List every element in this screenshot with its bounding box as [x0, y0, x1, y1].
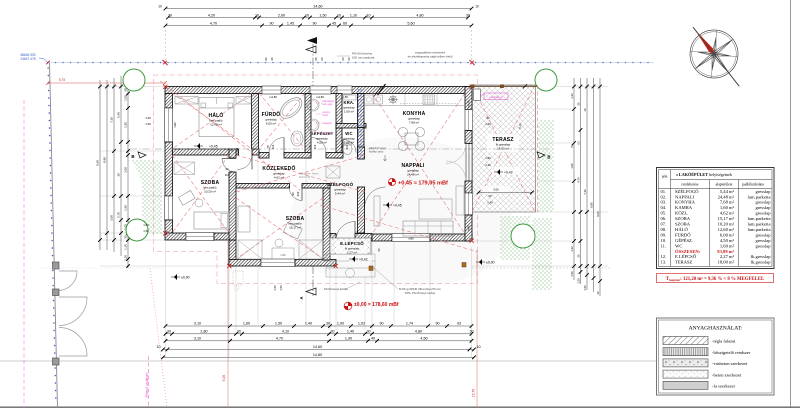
- svg-text:gresslap: gresslap: [755, 243, 771, 248]
- svg-text:10: 10: [596, 291, 600, 295]
- svg-text:01.: 01.: [661, 189, 667, 194]
- svg-text:2,27 m²: 2,27 m²: [347, 250, 357, 254]
- svg-text:8,80: 8,80: [589, 202, 593, 208]
- svg-text:10: 10: [337, 13, 341, 17]
- svg-text:3,00: 3,00: [124, 167, 128, 173]
- svg-text:10: 10: [366, 13, 370, 17]
- svg-text:93: 93: [457, 322, 461, 326]
- svg-text:13.: 13.: [661, 260, 667, 265]
- svg-text:4,50 m²: 4,50 m²: [317, 140, 327, 144]
- svg-text:1,50: 1,50: [319, 13, 326, 17]
- svg-text:4,10: 4,10: [282, 330, 289, 334]
- svg-text:1,50: 1,50: [145, 116, 151, 120]
- svg-text:B: B: [547, 155, 550, 160]
- svg-text:30: 30: [117, 173, 121, 177]
- svg-text:63: 63: [576, 141, 580, 145]
- svg-text:WC: WC: [345, 131, 352, 136]
- svg-text:75: 75: [340, 145, 344, 148]
- svg-text:14,80: 14,80: [313, 353, 322, 357]
- svg-text:03.: 03.: [661, 200, 667, 205]
- svg-text:10: 10: [158, 4, 162, 8]
- svg-text:E.LÉPCSŐ: E.LÉPCSŐ: [340, 241, 364, 246]
- svg-text:10,20 m²: 10,20 m²: [204, 189, 216, 193]
- svg-text:ÖSSZESEN:: ÖSSZESEN:: [675, 249, 701, 254]
- svg-text:rendeltetése: rendeltetése: [681, 183, 699, 187]
- svg-text:210: 210: [296, 191, 300, 196]
- svg-text:-fa szerkezet: -fa szerkezet: [712, 384, 736, 389]
- svg-text:m3,00: m3,00: [466, 100, 470, 108]
- svg-text:1,50: 1,50: [143, 223, 149, 227]
- svg-text:melegvíz: melegvíz: [323, 123, 333, 125]
- svg-text:07.: 07.: [661, 222, 667, 227]
- svg-text:+0,42: +0,42: [504, 171, 513, 175]
- svg-text:90: 90: [264, 57, 268, 61]
- svg-text:10: 10: [476, 345, 480, 349]
- svg-text:10: 10: [475, 4, 479, 8]
- svg-text:-hőszigetelő rendszer: -hőszigetelő rendszer: [712, 350, 751, 355]
- svg-text:5,44 m²: 5,44 m²: [335, 191, 345, 195]
- svg-text:vízell.: vízell.: [323, 115, 329, 117]
- svg-text:KÖZL.: KÖZL.: [675, 211, 688, 216]
- svg-text:1,60: 1,60: [243, 322, 250, 326]
- svg-text:1,50: 1,50: [124, 205, 128, 211]
- svg-text:10: 10: [156, 345, 160, 349]
- svg-text:lam.parketta: lam.parketta: [748, 194, 771, 199]
- svg-text:-tégla falazat: -tégla falazat: [712, 339, 736, 344]
- svg-text:3,10: 3,10: [194, 322, 201, 326]
- svg-text:210: 210: [271, 144, 275, 149]
- svg-text:3,10: 3,10: [194, 337, 201, 341]
- svg-text:60: 60: [341, 57, 345, 61]
- svg-text:30: 30: [366, 330, 370, 334]
- svg-text:m90: m90: [466, 225, 470, 231]
- svg-text:1,60 m²: 1,60 m²: [344, 140, 354, 144]
- svg-text:06.: 06.: [661, 216, 667, 221]
- svg-text:7,30: 7,30: [110, 117, 114, 123]
- svg-text:30: 30: [167, 330, 171, 334]
- svg-text:40: 40: [270, 57, 274, 61]
- svg-text:30: 30: [466, 13, 470, 17]
- svg-text:04.: 04.: [661, 205, 667, 210]
- svg-text:1,03: 1,03: [358, 322, 365, 326]
- svg-text:±0,00: ±0,00: [181, 276, 190, 280]
- svg-text:10: 10: [255, 13, 259, 17]
- svg-text:30: 30: [330, 330, 334, 334]
- svg-text:30: 30: [237, 330, 241, 334]
- svg-text:4,80: 4,80: [416, 13, 423, 17]
- svg-text:alapterülete: alapterülete: [716, 183, 733, 187]
- svg-text:E.LÉPCSŐ: E.LÉPCSŐ: [675, 254, 697, 259]
- svg-text:+0,45: +0,45: [393, 204, 402, 208]
- svg-text:40: 40: [371, 337, 375, 341]
- svg-text:12.: 12.: [661, 254, 667, 259]
- svg-text:ANYAGHASZNÁLAT:: ANYAGHASZNÁLAT:: [689, 324, 743, 332]
- svg-text:2,80: 2,80: [200, 330, 207, 334]
- svg-text:GÉPÉSZ.: GÉPÉSZ.: [675, 238, 693, 243]
- svg-text:5,75: 5,75: [59, 78, 65, 82]
- svg-text:1,80: 1,80: [485, 156, 491, 160]
- svg-text:m1,80: m1,80: [269, 95, 277, 99]
- svg-text:hőszivattyú: hőszivattyú: [323, 100, 335, 103]
- svg-text:gresslap: gresslap: [755, 232, 771, 237]
- svg-text:B: B: [131, 154, 134, 159]
- svg-text:KONYHA: KONYHA: [675, 200, 696, 205]
- svg-text:90: 90: [435, 322, 439, 326]
- svg-text:1,80: 1,80: [570, 163, 574, 169]
- svg-text:+0,45: +0,45: [209, 145, 218, 149]
- svg-text:6,00 m²: 6,00 m²: [266, 121, 276, 125]
- svg-text:nádvágyú: nádvágyú: [489, 95, 502, 99]
- svg-text:4,70: 4,70: [276, 337, 283, 341]
- svg-text:75: 75: [266, 145, 270, 148]
- svg-text:90: 90: [269, 21, 273, 25]
- svg-text:10: 10: [305, 13, 309, 17]
- svg-text:3,00: 3,00: [493, 188, 499, 192]
- svg-text:m1,80: m1,80: [316, 95, 324, 99]
- svg-text:2,40: 2,40: [485, 122, 491, 126]
- svg-text:18,00 m²: 18,00 m²: [497, 146, 509, 150]
- svg-text:lam.parketta: lam.parketta: [748, 222, 771, 227]
- svg-text:8,80: 8,80: [103, 157, 107, 163]
- svg-text:90: 90: [570, 144, 574, 148]
- svg-text:FÜRDŐ: FÜRDŐ: [675, 232, 691, 237]
- svg-text:Pihenő utcafront: Pihenő utcafront: [145, 373, 149, 398]
- svg-text:75: 75: [308, 145, 312, 148]
- svg-text:2,40: 2,40: [487, 201, 493, 205]
- svg-text:XPS; 15x15 fényl-oszlop: XPS; 15x15 fényl-oszlop: [405, 291, 436, 295]
- svg-text:60: 60: [343, 21, 347, 25]
- svg-text:1,05: 1,05: [124, 95, 128, 101]
- svg-text:3,00: 3,00: [110, 215, 114, 221]
- svg-text:9,26: 9,26: [222, 375, 226, 382]
- svg-text:±0,00: ±0,00: [486, 261, 495, 265]
- svg-text:SZÉLFOGÓ: SZÉLFOGÓ: [327, 180, 354, 187]
- svg-text:és elszikkasztás saját telken: és elszikkasztás saját telken belül: [408, 55, 453, 59]
- svg-text:90: 90: [291, 192, 295, 195]
- svg-text:2,00: 2,00: [278, 13, 285, 17]
- svg-text:210: 210: [345, 144, 349, 149]
- svg-text:24647.478: 24647.478: [20, 57, 35, 61]
- svg-text:1,50: 1,50: [273, 285, 277, 291]
- svg-text:4,50: 4,50: [420, 337, 427, 341]
- svg-text:9,00: 9,00: [596, 211, 600, 217]
- svg-text:30: 30: [168, 13, 172, 17]
- svg-text:HÁLÓ: HÁLÓ: [675, 227, 688, 232]
- svg-text:90: 90: [314, 57, 318, 61]
- svg-text:14,60: 14,60: [313, 4, 322, 8]
- svg-text:30: 30: [469, 330, 473, 334]
- svg-text:+0,45 ≈ 179,05 mBf: +0,45 ≈ 179,05 mBf: [398, 181, 448, 187]
- svg-text:1,22: 1,22: [570, 93, 574, 99]
- svg-text:4,62 m²: 4,62 m²: [274, 175, 284, 179]
- svg-text:kiváltó tartó: kiváltó tartó: [369, 150, 384, 154]
- svg-text:100 mm padozat: 100 mm padozat: [352, 56, 375, 60]
- svg-text:9,60: 9,60: [96, 160, 100, 166]
- svg-text:-vasbeton szerkezet: -vasbeton szerkezet: [712, 361, 748, 366]
- svg-text:fk.gresslap: fk.gresslap: [750, 254, 771, 259]
- svg-text:210: 210: [313, 144, 317, 149]
- svg-text:2,70: 2,70: [117, 212, 121, 218]
- svg-text:60: 60: [347, 57, 351, 61]
- svg-text:-beton szerkezet: -beton szerkezet: [712, 372, 742, 377]
- svg-text:11.: 11.: [661, 243, 667, 248]
- svg-text:30: 30: [576, 102, 580, 106]
- svg-text:15x20 kenyl-kiváltó: 15x20 kenyl-kiváltó: [324, 287, 348, 291]
- svg-text:KAMRA: KAMRA: [675, 205, 693, 210]
- svg-text:gresslap: gresslap: [755, 211, 771, 216]
- svg-text:90: 90: [488, 194, 492, 198]
- svg-text:08.: 08.: [661, 227, 667, 232]
- svg-text:+0,42: +0,42: [359, 258, 368, 262]
- svg-text:45: 45: [332, 21, 336, 25]
- svg-text:15,76: 15,76: [472, 389, 476, 398]
- svg-text:210: 210: [225, 173, 230, 177]
- svg-text:1,00: 1,00: [337, 322, 344, 326]
- svg-text:90: 90: [230, 148, 234, 151]
- svg-text:gresslap: gresslap: [755, 238, 771, 243]
- svg-text:gresslap: gresslap: [755, 189, 771, 194]
- svg-text:4,70: 4,70: [210, 21, 217, 25]
- svg-text:1,40: 1,40: [347, 330, 354, 334]
- svg-text:fk.gresslap: fk.gresslap: [750, 260, 771, 265]
- svg-text:SZOBA: SZOBA: [675, 216, 691, 221]
- svg-text:padlóburkolata: padlóburkolata: [742, 183, 764, 187]
- svg-text:14,60: 14,60: [313, 345, 322, 349]
- svg-text:jele: jele: [661, 174, 668, 179]
- svg-text:m90: m90: [408, 236, 414, 240]
- svg-text:m90: m90: [280, 253, 286, 257]
- svg-text:1,45: 1,45: [287, 21, 294, 25]
- svg-text:93,89 m²: 93,89 m²: [717, 249, 734, 254]
- svg-text:TERASZ: TERASZ: [675, 260, 693, 265]
- svg-text:1,50: 1,50: [145, 122, 151, 126]
- svg-text:gresslap: gresslap: [755, 205, 771, 210]
- svg-text:5,60: 5,60: [407, 21, 414, 25]
- svg-text:5,40: 5,40: [117, 112, 121, 118]
- svg-text:lam.parketta: lam.parketta: [748, 227, 771, 232]
- svg-text:A: A: [299, 296, 304, 299]
- svg-text:±0,00 = 178,60 mBf: ±0,00 = 178,60 mBf: [354, 302, 399, 308]
- svg-text:4,80: 4,80: [415, 330, 422, 334]
- svg-text:GÉPÉSZET: GÉPÉSZET: [311, 131, 334, 136]
- svg-text:1,10: 1,10: [350, 13, 357, 17]
- svg-text:1,30: 1,30: [124, 255, 128, 261]
- svg-text:90: 90: [379, 322, 383, 326]
- svg-text:90: 90: [312, 21, 316, 25]
- svg-text:7,30: 7,30: [583, 189, 587, 195]
- svg-text:1,50: 1,50: [570, 271, 574, 277]
- svg-text:110cm×60: 110cm×60: [299, 176, 311, 179]
- svg-text:gresslap: gresslap: [755, 200, 771, 205]
- svg-text:WC: WC: [675, 243, 682, 248]
- svg-text:90: 90: [486, 116, 490, 120]
- svg-text:Tbeépített: 121,20 m² = 9,36 %: Tbeépített: 121,20 m² = 9,36 % < 8 % MEG…: [666, 276, 764, 282]
- svg-text:1,74: 1,74: [406, 322, 413, 326]
- svg-text:30: 30: [576, 254, 580, 258]
- svg-text:1,90: 1,90: [345, 337, 352, 341]
- svg-text:210: 210: [235, 147, 239, 152]
- svg-text:15,17 m²: 15,17 m²: [289, 225, 301, 229]
- svg-text:belt. egys.: belt. egys.: [323, 103, 334, 106]
- svg-text:1,50: 1,50: [275, 322, 282, 326]
- svg-text:1,50: 1,50: [124, 122, 128, 128]
- svg-text:1,22: 1,22: [570, 246, 574, 252]
- svg-text:szenny.: szenny.: [323, 112, 331, 114]
- svg-text:1,50: 1,50: [143, 229, 149, 233]
- svg-text:4,70: 4,70: [576, 177, 580, 183]
- svg-text:10: 10: [583, 108, 587, 112]
- svg-text:1,60 m²: 1,60 m²: [344, 109, 354, 113]
- svg-text:10.: 10.: [661, 238, 667, 243]
- svg-text:2,40: 2,40: [485, 163, 491, 167]
- svg-text:12,60 m²: 12,60 m²: [210, 122, 222, 126]
- svg-text:24,48 m²: 24,48 m²: [407, 172, 419, 176]
- svg-text:05.: 05.: [661, 211, 667, 216]
- svg-text:KRA.: KRA.: [343, 100, 354, 105]
- svg-text:1,40: 1,40: [305, 322, 312, 326]
- svg-text:a LAKÓÉPÜLET helyiségeinek: a LAKÓÉPÜLET helyiségeinek: [676, 172, 733, 177]
- svg-text:30: 30: [326, 322, 330, 326]
- svg-text:1,50: 1,50: [583, 285, 587, 291]
- svg-text:1,50: 1,50: [576, 278, 580, 284]
- svg-text:1,50: 1,50: [279, 285, 283, 291]
- svg-text:SZOBA: SZOBA: [675, 222, 691, 227]
- svg-text:m90: m90: [173, 122, 177, 128]
- svg-text:60: 60: [320, 57, 324, 61]
- svg-text:lam.parketta: lam.parketta: [748, 216, 771, 221]
- svg-text:NAPPALI: NAPPALI: [675, 194, 694, 199]
- svg-text:4,20: 4,20: [208, 13, 215, 17]
- svg-text:1,30: 1,30: [124, 244, 128, 250]
- svg-text:7,68 m²: 7,68 m²: [409, 120, 419, 124]
- svg-text:02.: 02.: [661, 194, 667, 199]
- svg-text:SZÉLFOGÓ: SZÉLFOGÓ: [675, 189, 699, 194]
- svg-text:09.: 09.: [661, 232, 667, 237]
